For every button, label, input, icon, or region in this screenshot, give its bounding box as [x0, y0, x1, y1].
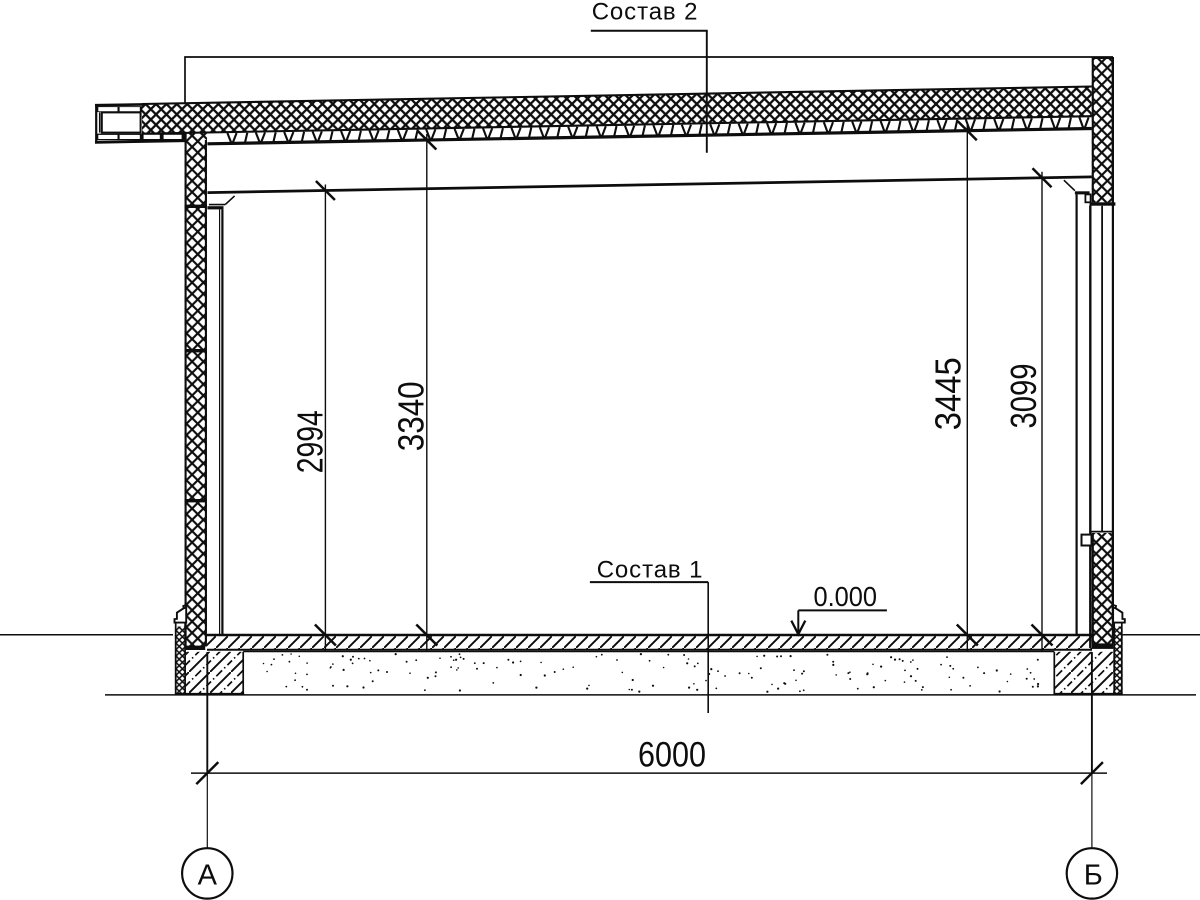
svg-text:2994: 2994 [289, 410, 330, 473]
svg-text:6000: 6000 [638, 735, 706, 774]
svg-text:0.000: 0.000 [814, 581, 878, 612]
svg-text:Б: Б [1084, 859, 1103, 891]
svg-text:Состав 2: Состав 2 [592, 0, 699, 25]
svg-text:3445: 3445 [927, 357, 968, 430]
svg-text:Состав 1: Состав 1 [597, 556, 704, 583]
svg-text:А: А [198, 859, 218, 891]
svg-text:3099: 3099 [1003, 364, 1044, 429]
svg-text:3340: 3340 [390, 381, 431, 451]
